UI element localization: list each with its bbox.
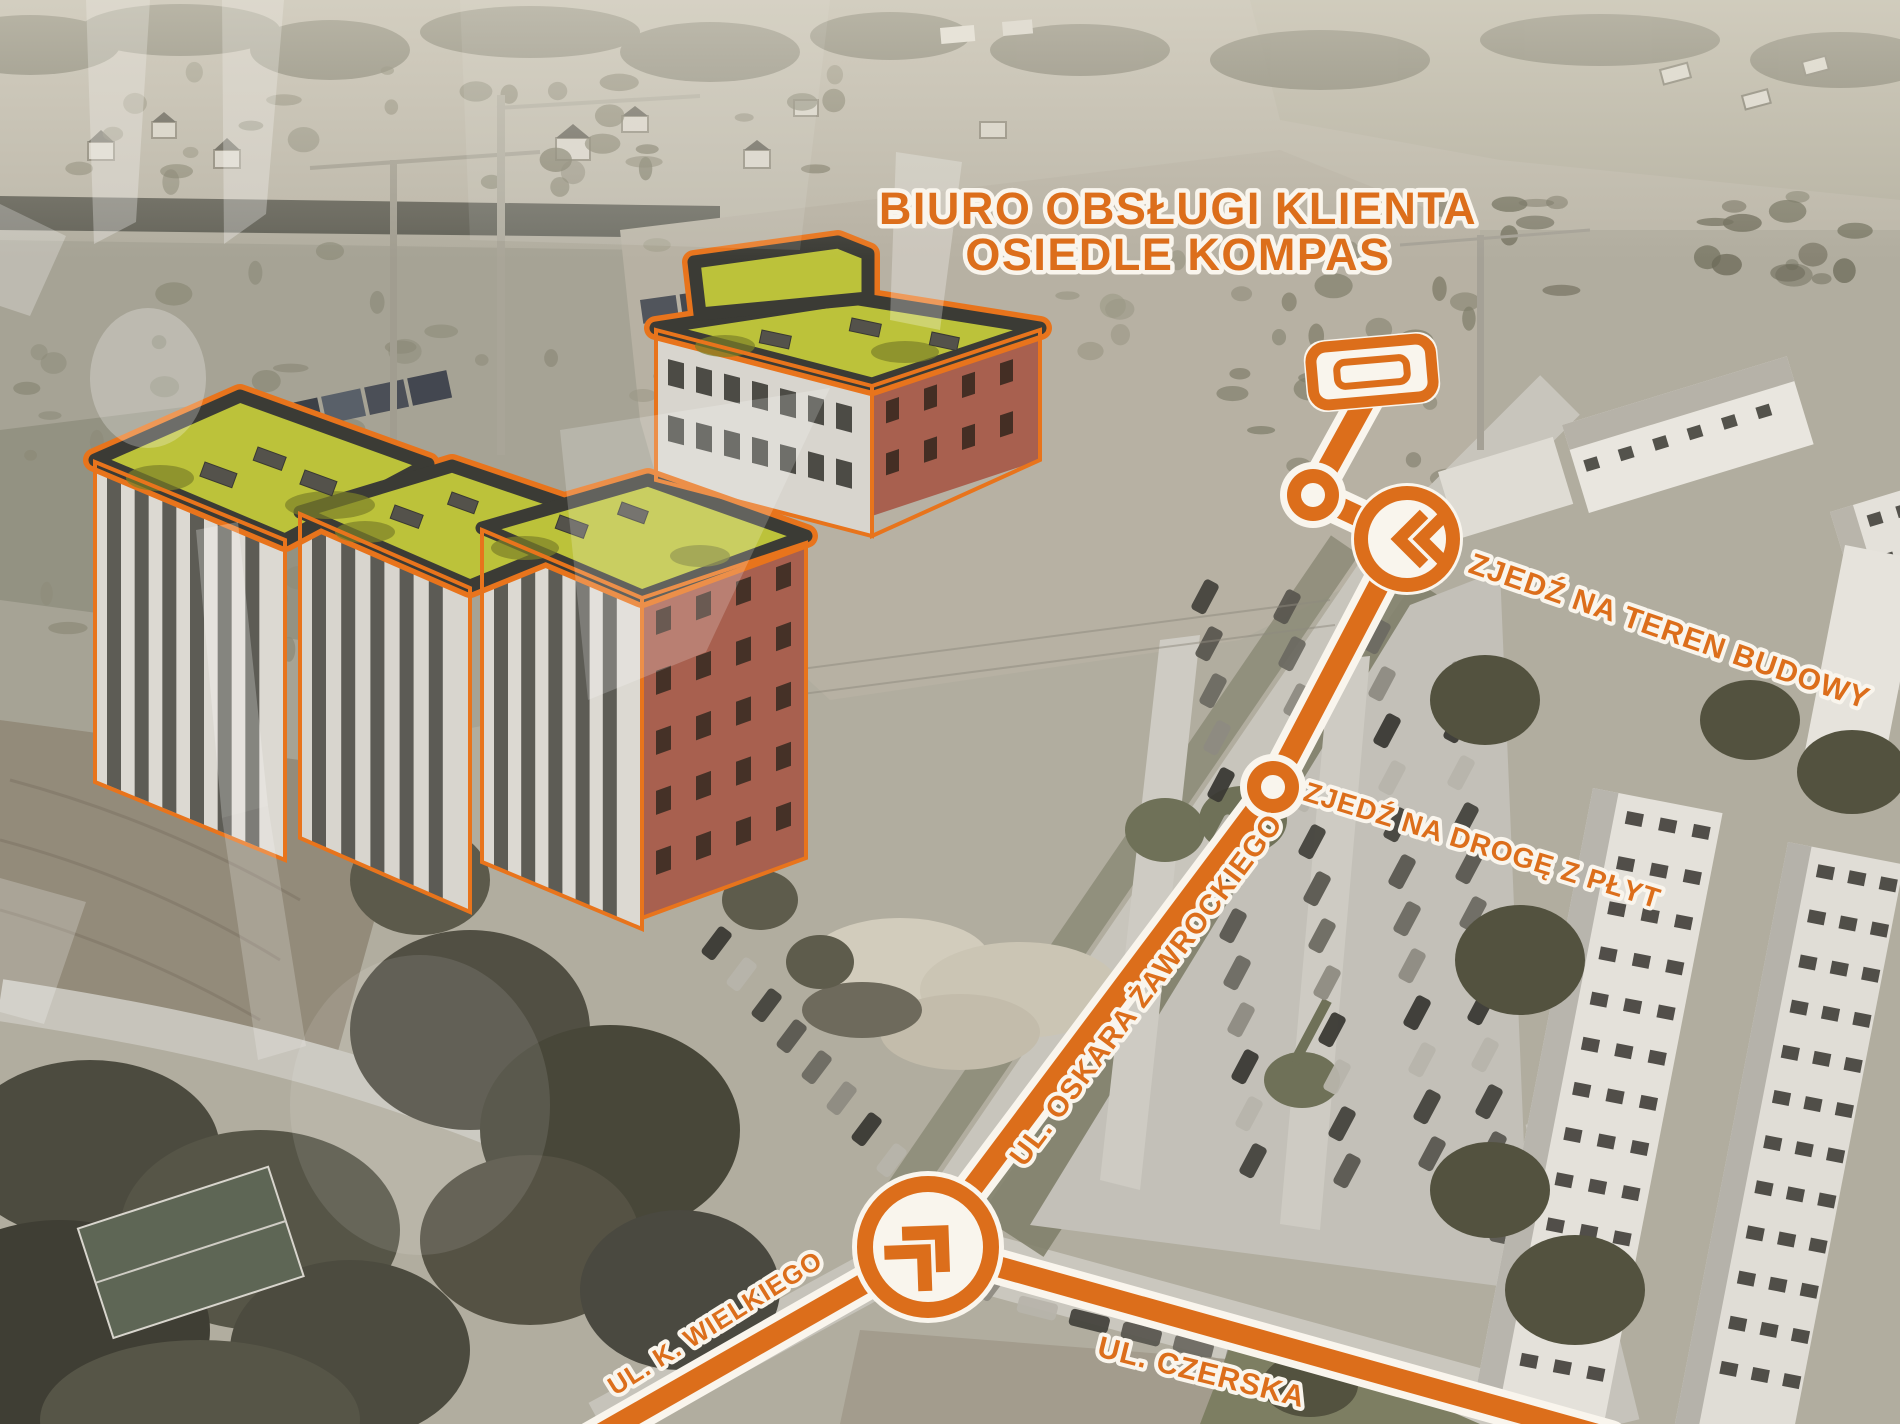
- route-node-icon: [1280, 462, 1346, 528]
- double-chevron-up-right-icon: [852, 1171, 1004, 1323]
- title-line-1: BIURO OBSŁUGI KLIENTA: [879, 183, 1477, 234]
- office-sign-icon: [1302, 330, 1442, 413]
- title-line-2: OSIEDLE KOMPAS: [965, 229, 1390, 280]
- route-node-icon: [1240, 754, 1306, 820]
- site-map: BIURO OBSŁUGI KLIENTA OSIEDLE KOMPAS ZJE…: [0, 0, 1900, 1424]
- double-chevron-left-icon: [1351, 483, 1463, 595]
